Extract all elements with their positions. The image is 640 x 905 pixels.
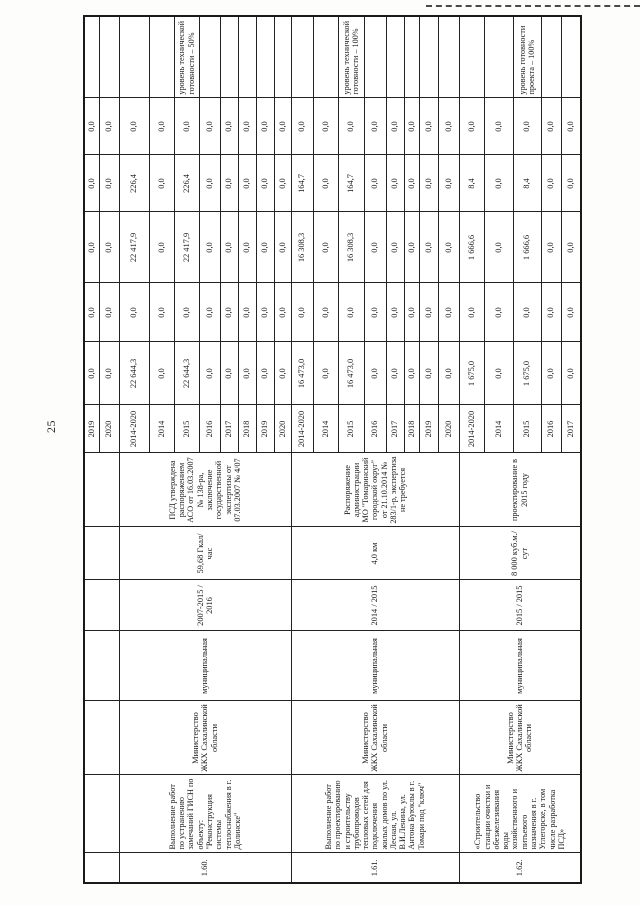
cell-grbs: Министерство ЖКХ Сахалинской области	[459, 701, 581, 775]
landscape-sheet: 25 20190,00,00,00,00,020200,00,00,00,00,…	[0, 0, 640, 905]
cell-amount: 0,0	[438, 155, 459, 212]
cell-amount: 0,0	[291, 283, 313, 342]
cell-amount: 0,0	[256, 155, 274, 212]
cell-readiness-note	[119, 16, 149, 98]
cell-amount: 0,0	[84, 155, 99, 212]
cell-amount: 0,0	[386, 155, 404, 212]
cell-readiness-note	[274, 16, 291, 98]
cell-year: 2020	[99, 405, 119, 453]
cell-year: 2014-2020	[291, 405, 313, 453]
cell-amount: 0,0	[541, 155, 561, 212]
cell-year: 2016	[364, 405, 386, 453]
cell-readiness-note: уровень технической готовности – 50%	[174, 16, 199, 98]
cell-amount: 0,0	[99, 342, 119, 405]
cell-amount: 0,0	[541, 212, 561, 283]
cell-amount: 0,0	[338, 283, 364, 342]
cell-amount: 0,0	[541, 283, 561, 342]
cell-readiness-note: уровень технической готовности – 100%	[338, 16, 364, 98]
cell-activity-name	[84, 775, 119, 853]
cell-amount: 0,0	[149, 342, 174, 405]
cell-amount: 0,0	[199, 98, 220, 155]
cell-amount: 16 308,3	[291, 212, 313, 283]
cell-amount: 0,0	[313, 155, 338, 212]
cell-readiness-note	[386, 16, 404, 98]
cell-row-number: 1.60.	[119, 853, 291, 883]
cell-capacity: 4,0 км	[291, 527, 459, 580]
cell-amount: 1 666,6	[459, 212, 484, 283]
cell-amount: 0,0	[459, 283, 484, 342]
cell-amount: 0,0	[419, 98, 438, 155]
cell-amount: 0,0	[338, 98, 364, 155]
cell-year: 2016	[199, 405, 220, 453]
cell-grbs	[84, 701, 119, 775]
cell-amount: 0,0	[256, 98, 274, 155]
cell-amount: 0,0	[438, 212, 459, 283]
cell-construction-period: 2014 / 2015	[291, 580, 459, 631]
cell-year: 2018	[404, 405, 419, 453]
cell-amount: 226,4	[174, 155, 199, 212]
cell-readiness-note	[238, 16, 256, 98]
cell-amount: 16 308,3	[338, 212, 364, 283]
cell-amount: 0,0	[386, 342, 404, 405]
cell-year: 2020	[274, 405, 291, 453]
cell-amount: 0,0	[274, 212, 291, 283]
cell-amount: 0,0	[99, 98, 119, 155]
cell-construction-period: 2007-2015 / 2016	[119, 580, 291, 631]
cell-psd-status: ПСД утверждена распоряжением АСО от 16.0…	[119, 453, 291, 527]
cell-activity-name: Выполнение работ по устранению замечаний…	[119, 775, 291, 853]
cell-amount: 0,0	[291, 98, 313, 155]
cell-amount: 1 675,0	[459, 342, 484, 405]
cell-amount: 0,0	[386, 283, 404, 342]
cell-amount: 0,0	[174, 98, 199, 155]
cell-amount: 0,0	[438, 342, 459, 405]
cell-amount: 0,0	[404, 342, 419, 405]
cell-grbs: Министерство ЖКХ Сахалинской области	[291, 701, 459, 775]
cell-amount: 16 473,0	[338, 342, 364, 405]
cell-year: 2014-2020	[459, 405, 484, 453]
cell-readiness-note	[484, 16, 513, 98]
cell-amount: 0,0	[149, 212, 174, 283]
cell-amount: 0,0	[256, 283, 274, 342]
cell-capacity	[84, 527, 119, 580]
page-number: 25	[44, 420, 59, 433]
program-financing-table: 20190,00,00,00,00,020200,00,00,00,00,01.…	[83, 15, 582, 884]
cell-ownership-form: муниципальная	[119, 631, 291, 701]
cell-amount: 0,0	[313, 212, 338, 283]
cell-amount: 0,0	[561, 342, 581, 405]
cell-amount: 226,4	[119, 155, 149, 212]
cell-amount: 0,0	[238, 98, 256, 155]
cell-readiness-note	[541, 16, 561, 98]
cell-readiness-note	[256, 16, 274, 98]
cell-amount: 0,0	[386, 212, 404, 283]
cell-readiness-note	[84, 16, 99, 98]
cell-amount: 0,0	[364, 212, 386, 283]
cell-year: 2017	[561, 405, 581, 453]
cell-amount: 16 473,0	[291, 342, 313, 405]
page-edge-dashed-line	[426, 5, 640, 7]
cell-amount: 0,0	[220, 155, 238, 212]
cell-grbs: Министерство ЖКХ Сахалинской области	[119, 701, 291, 775]
cell-amount: 0,0	[220, 212, 238, 283]
cell-amount: 0,0	[174, 283, 199, 342]
cell-amount: 0,0	[484, 98, 513, 155]
cell-amount: 0,0	[561, 155, 581, 212]
cell-amount: 1 675,0	[513, 342, 541, 405]
cell-year: 2016	[541, 405, 561, 453]
cell-readiness-note	[291, 16, 313, 98]
cell-amount: 1 666,6	[513, 212, 541, 283]
cell-row-number: 1.61.	[291, 853, 459, 883]
cell-amount: 22 644,3	[174, 342, 199, 405]
cell-readiness-note	[438, 16, 459, 98]
cell-amount: 0,0	[199, 342, 220, 405]
cell-amount: 0,0	[561, 98, 581, 155]
cell-readiness-note	[149, 16, 174, 98]
cell-amount: 0,0	[484, 283, 513, 342]
cell-psd-status: проектирование в 2015 году	[459, 453, 581, 527]
cell-amount: 0,0	[438, 98, 459, 155]
cell-amount: 0,0	[256, 342, 274, 405]
cell-amount: 0,0	[99, 155, 119, 212]
cell-amount: 0,0	[404, 155, 419, 212]
cell-amount: 0,0	[313, 283, 338, 342]
cell-activity-name: Выполнение работ по проектированию и стр…	[291, 775, 459, 853]
cell-amount: 0,0	[119, 283, 149, 342]
cell-amount: 0,0	[541, 342, 561, 405]
cell-amount: 0,0	[84, 283, 99, 342]
cell-amount: 0,0	[274, 283, 291, 342]
cell-amount: 0,0	[99, 212, 119, 283]
cell-activity-name: «Строительство станции очистки и обезжел…	[459, 775, 581, 853]
cell-amount: 0,0	[419, 283, 438, 342]
cell-amount: 0,0	[84, 212, 99, 283]
cell-amount: 0,0	[561, 283, 581, 342]
cell-amount: 0,0	[199, 212, 220, 283]
cell-amount: 0,0	[99, 283, 119, 342]
cell-amount: 0,0	[459, 98, 484, 155]
cell-readiness-note	[99, 16, 119, 98]
cell-row-number	[84, 853, 119, 883]
cell-year: 2014	[149, 405, 174, 453]
cell-capacity: 8 000 куб.м./сут	[459, 527, 581, 580]
program-table-body: 20190,00,00,00,00,020200,00,00,00,00,01.…	[84, 16, 581, 883]
cell-amount: 0,0	[149, 98, 174, 155]
cell-amount: 0,0	[84, 342, 99, 405]
cell-amount: 22 644,3	[119, 342, 149, 405]
cell-amount: 0,0	[313, 98, 338, 155]
cell-amount: 0,0	[274, 155, 291, 212]
cell-amount: 0,0	[149, 155, 174, 212]
cell-year: 2019	[84, 405, 99, 453]
cell-amount: 164,7	[338, 155, 364, 212]
cell-amount: 0,0	[419, 155, 438, 212]
cell-amount: 0,0	[404, 283, 419, 342]
cell-amount: 0,0	[364, 98, 386, 155]
cell-amount: 0,0	[404, 98, 419, 155]
cell-readiness-note	[199, 16, 220, 98]
cell-amount: 0,0	[313, 342, 338, 405]
cell-amount: 0,0	[238, 155, 256, 212]
cell-amount: 22 417,9	[174, 212, 199, 283]
cell-amount: 0,0	[238, 283, 256, 342]
cell-amount: 0,0	[513, 283, 541, 342]
cell-ownership-form	[84, 631, 119, 701]
cell-amount: 0,0	[238, 212, 256, 283]
cell-amount: 0,0	[561, 212, 581, 283]
cell-psd-status: Распоряжение администрации МО "Томаринск…	[291, 453, 459, 527]
table-row: 1.62.«Строительство станции очистки и об…	[459, 16, 484, 883]
cell-readiness-note: уровень готовности проекта – 100%	[513, 16, 541, 98]
cell-amount: 0,0	[220, 98, 238, 155]
cell-amount: 0,0	[256, 212, 274, 283]
cell-readiness-note	[561, 16, 581, 98]
cell-amount: 0,0	[274, 98, 291, 155]
cell-amount: 0,0	[541, 98, 561, 155]
cell-construction-period: 2015 / 2015	[459, 580, 581, 631]
cell-amount: 22 417,9	[119, 212, 149, 283]
cell-amount: 0,0	[419, 342, 438, 405]
cell-construction-period	[84, 580, 119, 631]
cell-amount: 0,0	[238, 342, 256, 405]
cell-amount: 0,0	[438, 283, 459, 342]
cell-amount: 0,0	[513, 98, 541, 155]
cell-readiness-note	[404, 16, 419, 98]
cell-amount: 0,0	[404, 212, 419, 283]
cell-amount: 0,0	[484, 155, 513, 212]
cell-capacity: 59,68 Гкал/час	[119, 527, 291, 580]
cell-amount: 0,0	[274, 342, 291, 405]
cell-amount: 8,4	[513, 155, 541, 212]
cell-amount: 0,0	[119, 98, 149, 155]
cell-amount: 0,0	[484, 212, 513, 283]
cell-amount: 0,0	[364, 283, 386, 342]
cell-amount: 0,0	[386, 98, 404, 155]
cell-amount: 0,0	[220, 283, 238, 342]
cell-year: 2017	[220, 405, 238, 453]
cell-year: 2014	[313, 405, 338, 453]
cell-amount: 0,0	[199, 283, 220, 342]
cell-readiness-note	[364, 16, 386, 98]
cell-amount: 0,0	[364, 155, 386, 212]
cell-ownership-form: муниципальная	[459, 631, 581, 701]
cell-readiness-note	[220, 16, 238, 98]
cell-psd-status	[84, 453, 119, 527]
cell-year: 2015	[174, 405, 199, 453]
cell-amount: 0,0	[364, 342, 386, 405]
cell-readiness-note	[313, 16, 338, 98]
cell-readiness-note	[459, 16, 484, 98]
cell-year: 2018	[238, 405, 256, 453]
cell-amount: 164,7	[291, 155, 313, 212]
cell-year: 2014-2020	[119, 405, 149, 453]
cell-year: 2020	[438, 405, 459, 453]
cell-year: 2019	[256, 405, 274, 453]
table-row: 1.61.Выполнение работ по проектированию …	[291, 16, 313, 883]
cell-amount: 0,0	[84, 98, 99, 155]
cell-amount: 0,0	[199, 155, 220, 212]
cell-year: 2015	[513, 405, 541, 453]
cell-row-number: 1.62.	[459, 853, 581, 883]
cell-year: 2014	[484, 405, 513, 453]
table-row: 20190,00,00,00,00,0	[84, 16, 99, 883]
cell-ownership-form: муниципальная	[291, 631, 459, 701]
cell-amount: 0,0	[220, 342, 238, 405]
cell-amount: 0,0	[484, 342, 513, 405]
cell-year: 2017	[386, 405, 404, 453]
cell-year: 2019	[419, 405, 438, 453]
cell-readiness-note	[419, 16, 438, 98]
cell-amount: 0,0	[149, 283, 174, 342]
scanned-page: 25 20190,00,00,00,00,020200,00,00,00,00,…	[0, 0, 640, 905]
cell-amount: 8,4	[459, 155, 484, 212]
cell-year: 2015	[338, 405, 364, 453]
table-row: 1.60.Выполнение работ по устранению заме…	[119, 16, 149, 883]
cell-amount: 0,0	[419, 212, 438, 283]
